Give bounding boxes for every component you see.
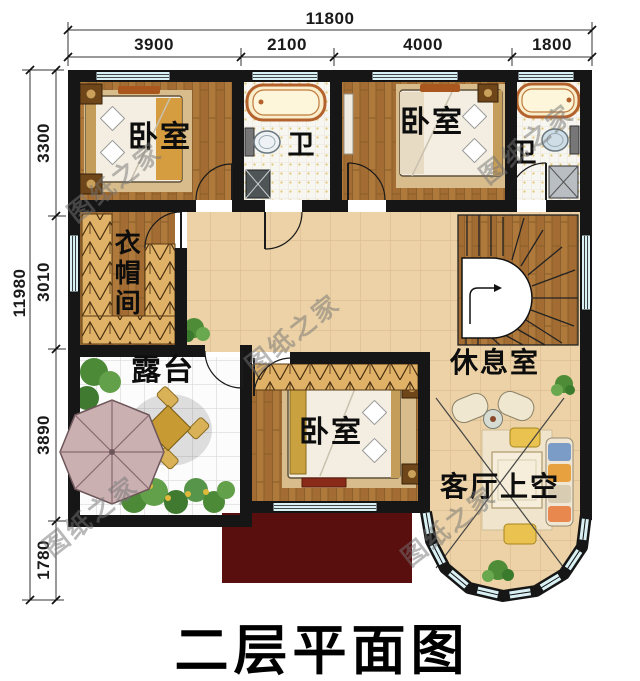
room-label-terrace: 露台 <box>113 355 213 387</box>
dim-left-seg-3: 3890 <box>35 395 53 475</box>
floor-plan: 11800 3900 2100 4000 1800 11980 3300 301… <box>0 0 640 681</box>
dim-top-total: 11800 <box>270 10 390 28</box>
room-label-bedroom-top-right: 卧室 <box>382 107 482 139</box>
window <box>372 72 458 81</box>
window <box>273 503 377 512</box>
dim-top-seg-3: 4000 <box>383 36 463 54</box>
floor-plan-drawing <box>0 0 640 681</box>
room-label-bath-top: 卫 <box>277 131 327 159</box>
dim-left-total: 11980 <box>11 248 29 338</box>
shower-icon <box>549 166 578 198</box>
dim-top-seg-1: 3900 <box>114 36 194 54</box>
window <box>582 235 591 310</box>
window <box>96 72 170 81</box>
room-label-cloakroom: 衣帽间 <box>112 224 142 324</box>
dim-top-seg-2: 2100 <box>247 36 327 54</box>
bathtub-icon <box>247 85 325 120</box>
room-label-lounge: 休息室 <box>430 348 560 377</box>
dim-top-seg-4: 1800 <box>512 36 592 54</box>
room-label-living-void: 客厅上空 <box>425 472 575 501</box>
page-title: 二层平面图 <box>132 606 512 681</box>
shower-icon <box>246 170 270 198</box>
room-label-bedroom-bottom: 卧室 <box>281 417 381 449</box>
window <box>70 235 79 292</box>
dim-left-seg-1: 3300 <box>35 103 53 183</box>
window <box>252 72 318 81</box>
window <box>518 72 574 81</box>
wardrobe <box>254 364 418 390</box>
dim-left-seg-2: 3010 <box>35 242 53 322</box>
staircase <box>458 215 578 345</box>
